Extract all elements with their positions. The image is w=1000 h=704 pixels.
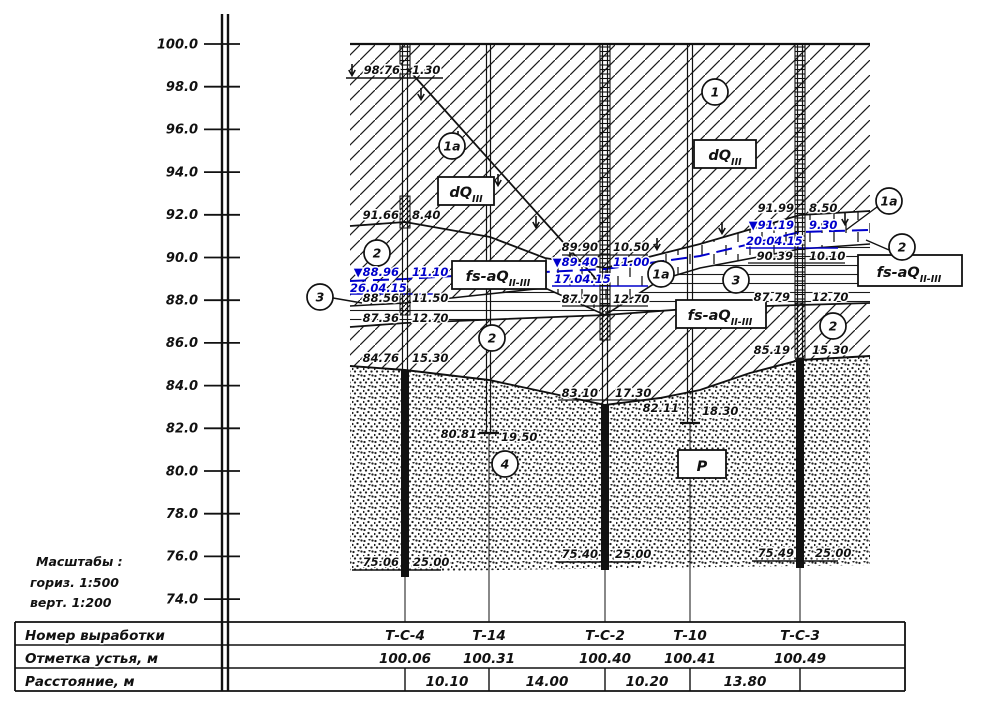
axis-tick-label: 80.0 (166, 464, 198, 479)
circled-unit-3-mid: 3 (723, 267, 749, 293)
tc3-depth-4: 15.30 (812, 343, 848, 357)
axis-tick-label: 100.0 (157, 37, 198, 52)
casing-hatch (400, 196, 410, 228)
mouth-elevation: 100.40 (579, 651, 631, 667)
casing-ladder (795, 44, 805, 303)
borehole-column (601, 405, 609, 570)
distance-value: 10.10 (426, 674, 469, 690)
axis-tick-label: 82.0 (166, 422, 198, 437)
tc4-elev-5: 75.06 (363, 555, 399, 569)
tc3-elev-1: 91.99 (758, 201, 794, 215)
tc2-water-date: 17.04.15 (554, 272, 611, 286)
tc4-elev-2: 88.56 (363, 291, 399, 305)
tc2-depth-2: 12.70 (613, 292, 649, 306)
axis-tick-label: 92.0 (166, 208, 198, 223)
svg-text:3: 3 (316, 290, 325, 305)
borehole-name: Т-10 (673, 628, 707, 644)
data-table-text: Номер выработки Отметка устья, м Расстоя… (25, 628, 826, 690)
circled-unit-2-low: 2 (820, 313, 846, 339)
tc2-water-depth: 11.00 (613, 255, 649, 269)
tc3-elev-2: 90.39 (757, 249, 793, 263)
borehole-column (796, 358, 804, 568)
svg-text:1a: 1a (652, 267, 669, 282)
axis-labels: 100.0 98.0 96.0 94.0 92.0 90.0 88.0 86.0… (157, 37, 198, 607)
tc3-water-date: 20.04.15 (746, 234, 803, 248)
mouth-elevation: 100.41 (664, 651, 716, 667)
svg-text:3: 3 (732, 273, 741, 288)
axis-tick-label: 86.0 (166, 336, 198, 351)
svg-text:4: 4 (500, 457, 510, 472)
tc2-depth-4: 25.00 (615, 547, 651, 561)
tc2-elev-4: 75.40 (562, 547, 598, 561)
tc2-elev-1: 89.90 (562, 240, 598, 254)
tc3-water-depth: 9.30 (809, 218, 837, 232)
axis-tick-label: 96.0 (166, 123, 198, 138)
tc4-surface-depth: 1.30 (412, 63, 440, 77)
tc4-elev-4: 84.76 (363, 351, 399, 365)
borehole-name: Т-С-3 (780, 628, 820, 644)
mouth-elevation: 100.31 (463, 651, 515, 667)
axis-tick-label: 94.0 (166, 165, 198, 180)
table-row-label: Отметка устья, м (25, 651, 158, 667)
svg-text:1a: 1a (443, 139, 460, 154)
tc4-depth-2: 11.50 (412, 291, 448, 305)
axis-tick-label: 98.0 (166, 80, 198, 95)
tc2-elev-2: 87.70 (562, 292, 598, 306)
tc3-depth-3: 12.70 (812, 290, 848, 304)
t10-bottom-depth: 18.30 (702, 404, 738, 418)
borehole-name: Т-С-2 (585, 628, 625, 644)
circled-unit-2-right: 2 (889, 234, 915, 260)
casing-hatch (795, 303, 805, 358)
table-row-label: Номер выработки (25, 628, 165, 644)
tc4-depth-5: 25.00 (413, 555, 449, 569)
axis-tick-label: 76.0 (166, 550, 198, 565)
tc4-depth-4: 15.30 (412, 351, 448, 365)
circled-unit-2-t14: 2 (479, 325, 505, 351)
borehole-tc2 (600, 44, 610, 622)
elevation-axis (204, 14, 240, 691)
mouth-elevation: 100.06 (379, 651, 431, 667)
mouth-elevation: 100.49 (774, 651, 826, 667)
circled-unit-3: 3 (307, 284, 333, 310)
distance-value: 13.80 (724, 674, 767, 690)
distance-value: 14.00 (526, 674, 569, 690)
tc2-depth-3: 17.30 (615, 386, 651, 400)
circled-unit-1: 1 (702, 79, 728, 105)
tc4-elev-1: 91.66 (363, 208, 399, 222)
tc3-elev-4: 85.19 (754, 343, 790, 357)
axis-tick-label: 74.0 (166, 592, 198, 607)
tc4-water-depth: 11.10 (412, 265, 448, 279)
svg-text:2: 2 (488, 331, 497, 346)
tc2-depth-1: 10.50 (613, 240, 649, 254)
axis-tick-label: 88.0 (166, 294, 198, 309)
tc4-water-elev: ▼88.96 (354, 265, 399, 279)
svg-text:1a: 1a (880, 194, 897, 209)
distance-value: 10.20 (626, 674, 669, 690)
casing-ladder (600, 44, 610, 305)
tc2-elev-3: 83.10 (562, 386, 598, 400)
tc4-elev-3: 87.36 (363, 311, 399, 325)
circled-unit-1a: 1a (439, 133, 465, 159)
scale-vertical: верт. 1:200 (30, 595, 112, 610)
axis-tick-label: 90.0 (166, 251, 198, 266)
t14-bottom-elev: 80.81 (441, 427, 477, 441)
circled-unit-2: 2 (364, 240, 390, 266)
tc4-depth-1: 8.40 (412, 208, 440, 222)
scale-horizontal: гориз. 1:500 (30, 575, 119, 590)
geological-cross-section: 100.0 98.0 96.0 94.0 92.0 90.0 88.0 86.0… (0, 0, 1000, 704)
tc3-water-elev: ▼91.19 (749, 218, 794, 232)
svg-text:2: 2 (829, 319, 838, 334)
borehole-name: Т-С-4 (385, 628, 425, 644)
casing-hatch (600, 305, 610, 340)
borehole-tc3 (795, 44, 805, 622)
table-row-label: Расстояние, м (25, 674, 135, 690)
tc3-depth-2: 10.10 (809, 249, 845, 263)
tc3-elev-3: 87.79 (754, 290, 790, 304)
tc2-water-elev: ▼89.40 (553, 255, 598, 269)
tc4-surface-elev: 98.76 (364, 63, 400, 77)
svg-text:1: 1 (711, 85, 720, 100)
t14-bottom-depth: 19.50 (501, 430, 537, 444)
casing-ladder (400, 44, 410, 78)
svg-text:2: 2 (898, 240, 907, 255)
cross-section-drawing: 100.0 98.0 96.0 94.0 92.0 90.0 88.0 86.0… (0, 0, 1000, 704)
circled-unit-4: 4 (492, 451, 518, 477)
axis-tick-label: 78.0 (166, 507, 198, 522)
borehole-column (401, 370, 409, 577)
scale-note: Масштабы : гориз. 1:500 верт. 1:200 (30, 554, 123, 610)
tc3-elev-5: 75.49 (758, 546, 794, 560)
tc4-depth-3: 12.70 (412, 311, 448, 325)
axis-tick-label: 84.0 (166, 379, 198, 394)
circled-unit-1a-right: 1a (876, 188, 902, 214)
scale-title: Масштабы : (36, 554, 123, 569)
borehole-name: Т-14 (472, 628, 506, 644)
tc3-depth-1: 8.50 (809, 201, 837, 215)
circled-unit-1a-mid: 1a (648, 261, 674, 287)
t10-bottom-elev: 82.11 (643, 401, 679, 415)
svg-text:2: 2 (373, 246, 382, 261)
tc3-depth-5: 25.00 (815, 546, 851, 560)
p-label: Р (697, 459, 708, 475)
